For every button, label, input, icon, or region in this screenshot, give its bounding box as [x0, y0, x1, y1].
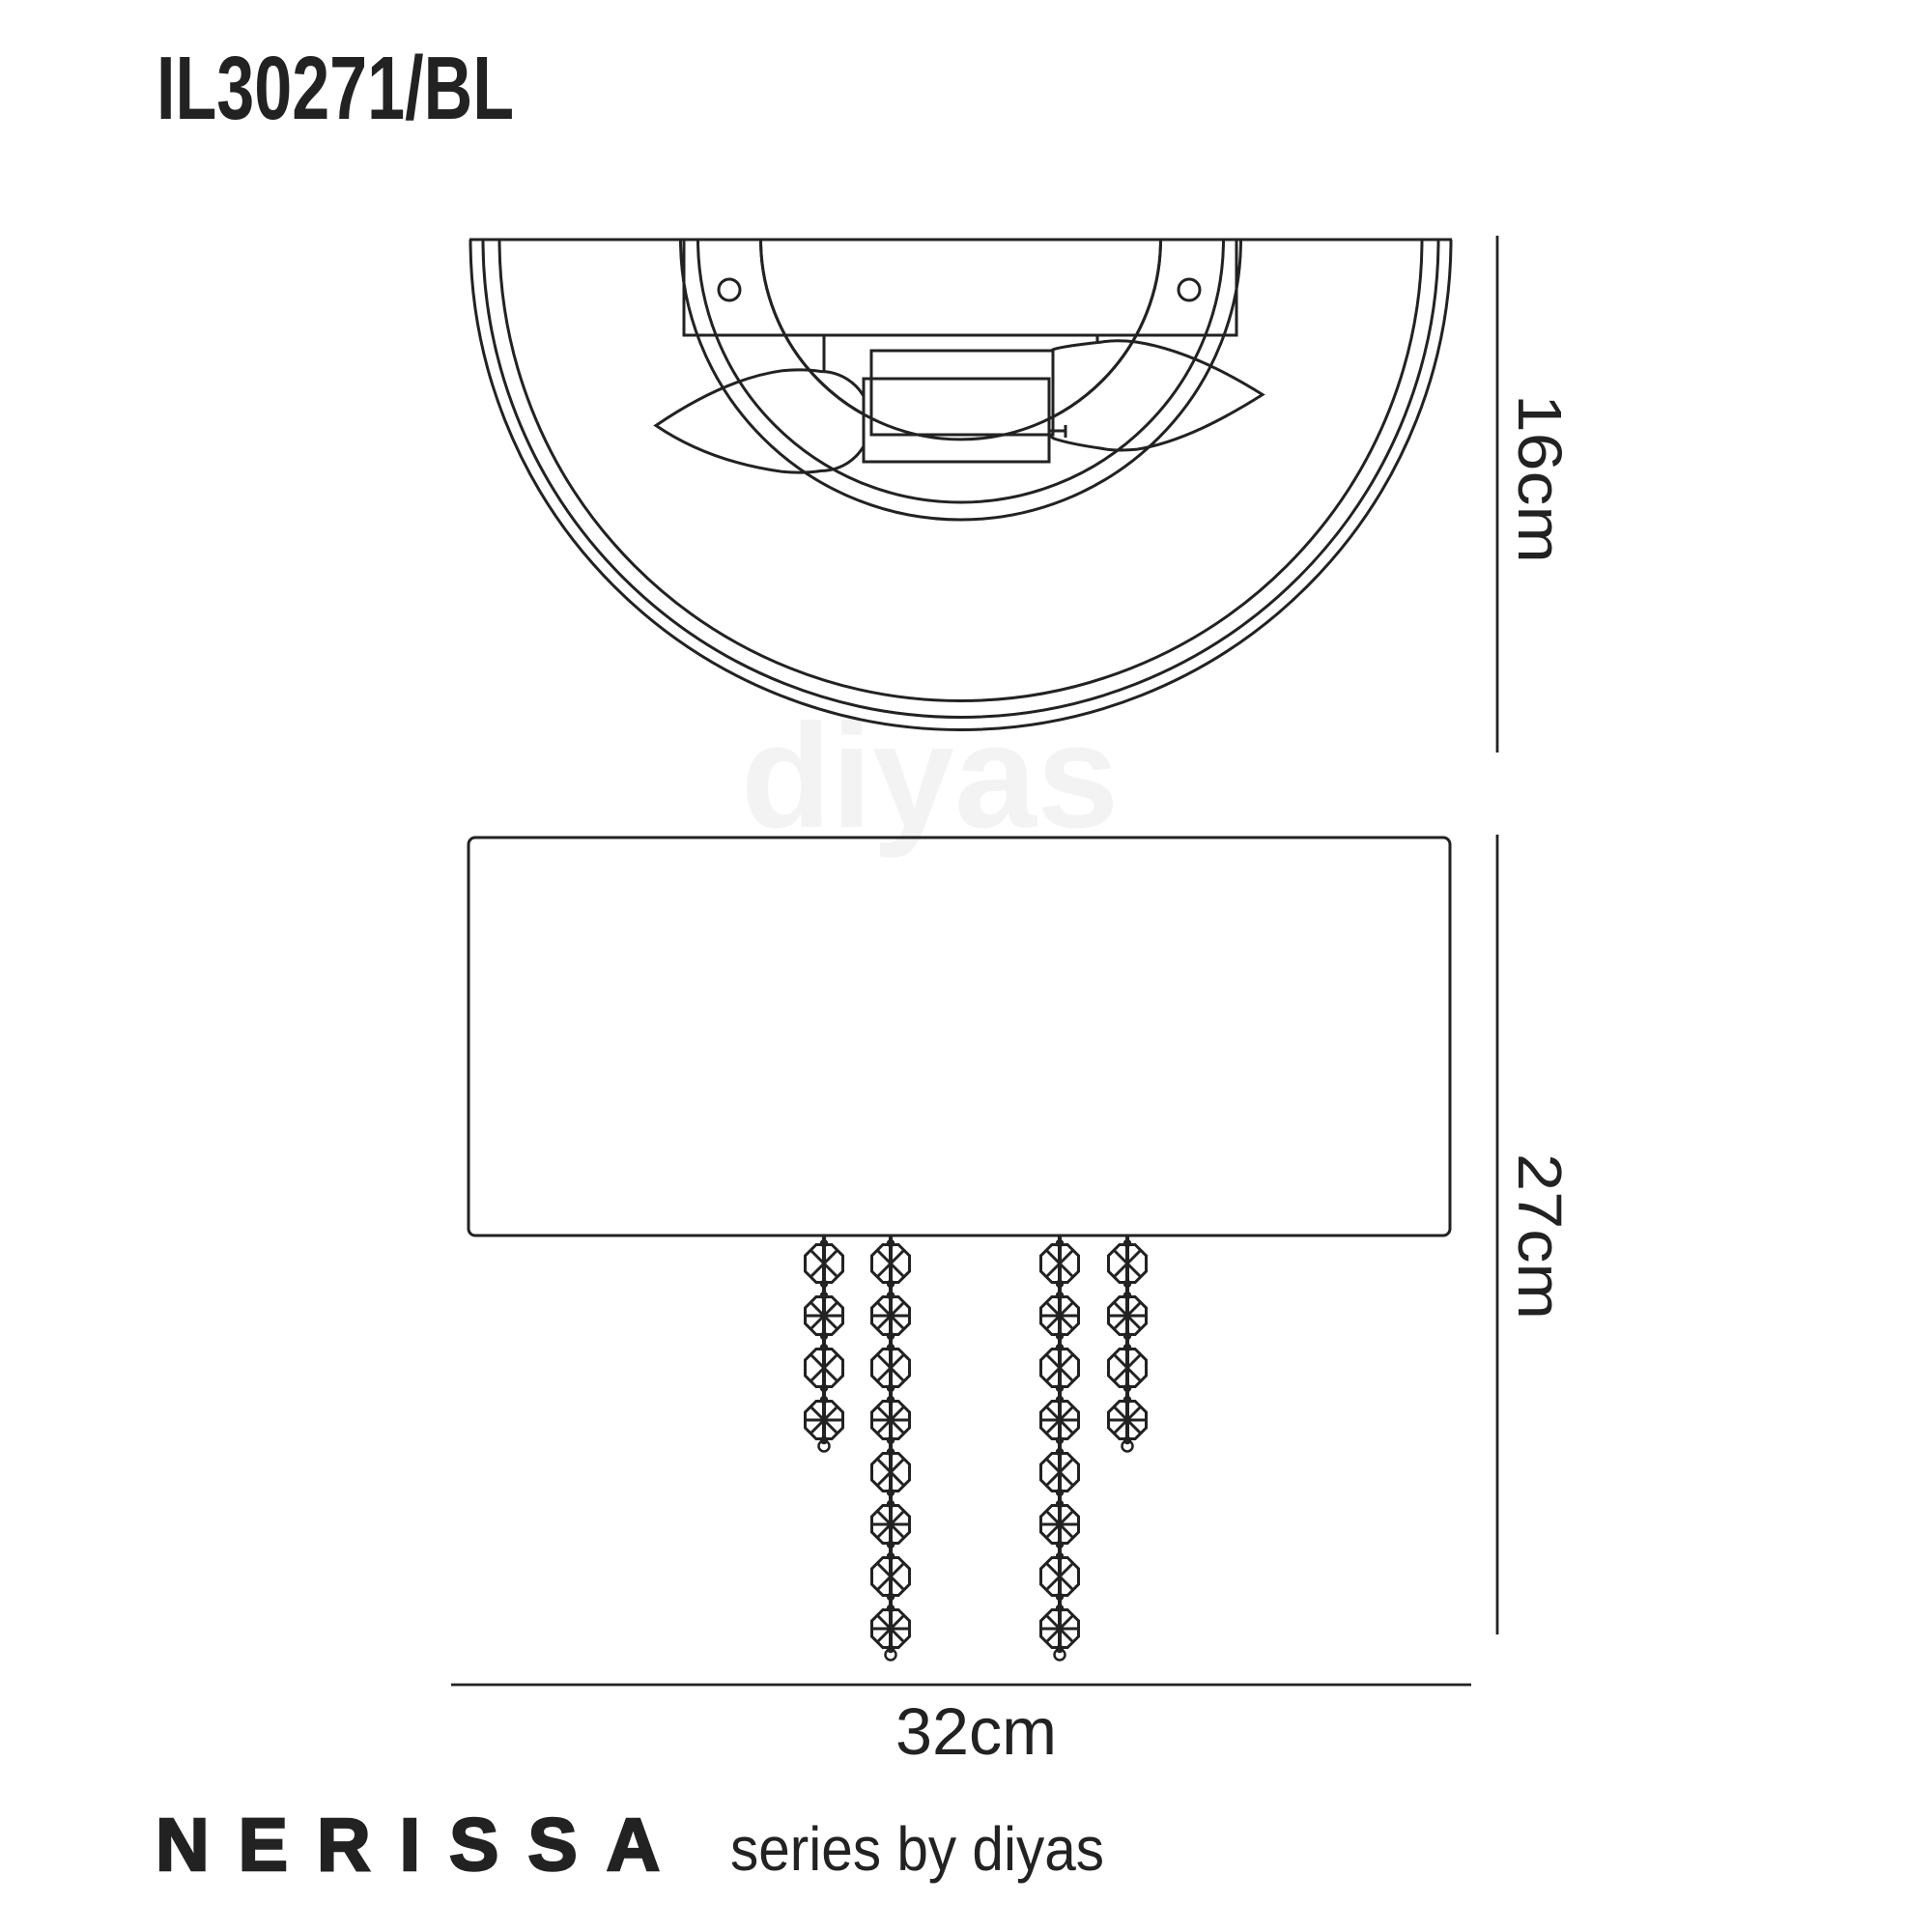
svg-text:IL30271/BL: IL30271/BL: [156, 38, 514, 138]
svg-text:NERISSA: NERISSA: [156, 1804, 689, 1887]
svg-text:32cm: 32cm: [895, 1694, 1057, 1769]
svg-text:series by diyas: series by diyas: [730, 1814, 1104, 1884]
svg-text:16cm: 16cm: [1505, 394, 1575, 563]
svg-text:27cm: 27cm: [1505, 1153, 1575, 1320]
